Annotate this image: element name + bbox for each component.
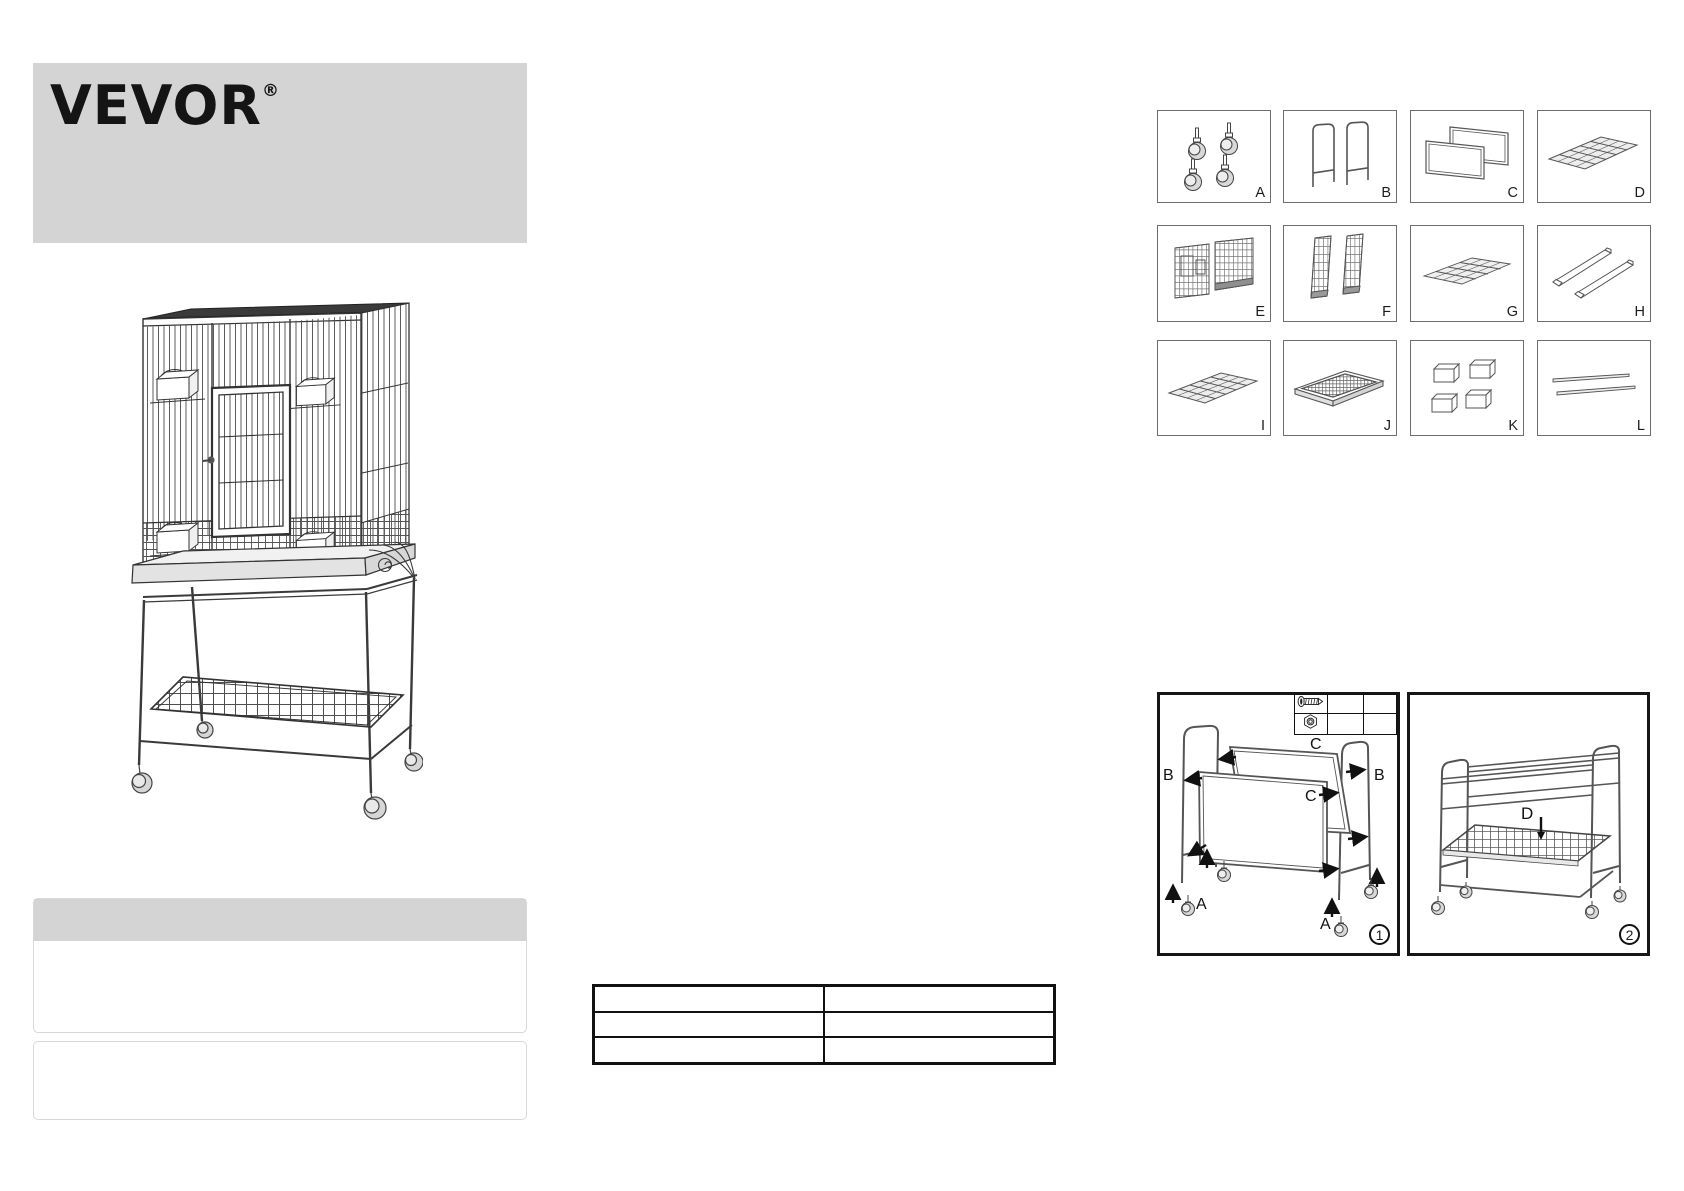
hardware-table — [1294, 694, 1397, 735]
part-label-k: K — [1508, 418, 1518, 434]
part-label-h: H — [1635, 304, 1645, 320]
hardware-row-nut — [1295, 714, 1397, 735]
part-label-i: I — [1261, 418, 1265, 434]
hardware-qty-cell — [1327, 714, 1363, 735]
mesh-shelf-flat-icon — [1161, 345, 1265, 425]
part-box-j: J — [1283, 340, 1397, 436]
assembly-step-2-panel: D 2 — [1407, 692, 1650, 956]
spec-table-row — [594, 1037, 1055, 1063]
spec-cell — [594, 1037, 825, 1063]
part-box-k: K — [1410, 340, 1524, 436]
nut-icon — [1303, 714, 1318, 729]
spec-table-row — [594, 986, 1055, 1012]
info-card-secondary — [33, 1041, 527, 1120]
cage-front-back-panels-icon — [1161, 230, 1265, 310]
cage-side-panels-icon — [1287, 230, 1391, 310]
logo-text: VEVOR — [50, 74, 262, 137]
part-box-g: G — [1410, 225, 1524, 322]
stand-side-frames-icon — [1287, 115, 1391, 195]
screw-icon — [1297, 695, 1325, 708]
manual-page: VEVOR® — [0, 0, 1684, 1191]
perch-rods-icon — [1541, 345, 1645, 425]
part-box-l: L — [1537, 340, 1651, 436]
spec-cell — [824, 986, 1055, 1012]
step-number-badge-2: 2 — [1619, 924, 1640, 945]
spec-cell — [824, 1012, 1055, 1038]
part-box-a: A — [1157, 110, 1271, 203]
mesh-shelf-icon — [1541, 115, 1645, 195]
hardware-qty-cell — [1363, 714, 1396, 735]
part-box-h: H — [1537, 225, 1651, 322]
caster-wheels-icon — [1161, 115, 1265, 195]
stand-assembled-illustration — [1410, 695, 1647, 953]
part-box-e: E — [1157, 225, 1271, 322]
part-box-b: B — [1283, 110, 1397, 203]
spec-table-row — [594, 1012, 1055, 1038]
step-number-2: 2 — [1626, 927, 1634, 943]
part-label-g: G — [1507, 304, 1518, 320]
part-box-c: C — [1410, 110, 1524, 203]
part-label-f: F — [1382, 304, 1391, 320]
part-ref-label-b-left: B — [1163, 768, 1174, 784]
hardware-qty-cell — [1327, 695, 1363, 714]
assembly-step-1-panel: C B B C A A 1 — [1157, 692, 1400, 956]
registered-trademark-icon: ® — [262, 81, 279, 101]
feeder-cups-icon — [1414, 345, 1518, 425]
step-number-1: 1 — [1376, 927, 1384, 943]
slide-out-tray-icon — [1287, 345, 1391, 425]
part-ref-label-d: D — [1521, 805, 1533, 822]
cage-floor-grate-icon — [1414, 230, 1518, 310]
spec-table — [592, 984, 1056, 1065]
part-label-l: L — [1637, 418, 1645, 434]
part-ref-label-c-top: C — [1310, 737, 1322, 753]
part-box-i: I — [1157, 340, 1271, 436]
part-ref-label-c-middle: C — [1305, 789, 1317, 805]
part-ref-label-b-right: B — [1374, 768, 1385, 784]
part-label-d: D — [1635, 185, 1645, 201]
bird-cage-illustration — [125, 297, 423, 837]
part-ref-label-a-left: A — [1196, 897, 1207, 913]
part-label-j: J — [1384, 418, 1391, 434]
part-label-b: B — [1381, 185, 1391, 201]
part-label-e: E — [1255, 304, 1265, 320]
vevor-logo: VEVOR® — [50, 79, 279, 133]
stand-support-frames-icon — [1414, 115, 1518, 195]
hardware-qty-cell — [1363, 695, 1396, 714]
info-card-primary — [33, 898, 527, 1033]
header-banner: VEVOR® — [33, 63, 527, 243]
step-number-badge-1: 1 — [1369, 924, 1390, 945]
part-box-d: D — [1537, 110, 1651, 203]
part-label-a: A — [1255, 185, 1265, 201]
spec-cell — [594, 1012, 825, 1038]
spec-cell — [824, 1037, 1055, 1063]
support-rails-icon — [1541, 230, 1645, 310]
part-box-f: F — [1283, 225, 1397, 322]
part-ref-label-a-right: A — [1320, 917, 1331, 933]
section-header-bar — [34, 899, 526, 941]
part-label-c: C — [1508, 185, 1518, 201]
spec-cell — [594, 986, 825, 1012]
hardware-row-screw — [1295, 695, 1397, 714]
